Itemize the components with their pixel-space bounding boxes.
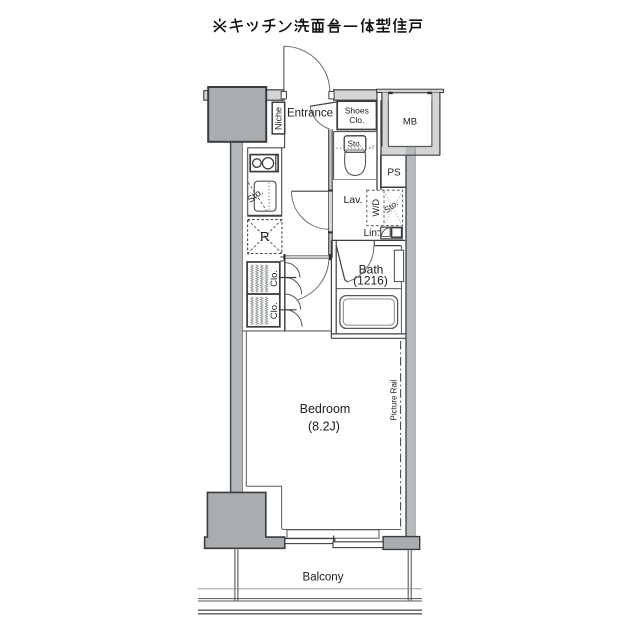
svg-text:Clo.: Clo. [349,115,364,125]
svg-text:Sto.: Sto. [348,139,362,148]
svg-text:Shoes: Shoes [345,106,369,116]
svg-text:Picture Rail: Picture Rail [389,379,398,420]
svg-text:PS: PS [387,168,401,179]
svg-text:Lav.: Lav. [343,194,362,206]
svg-text:Entrance: Entrance [287,108,333,120]
svg-text:W/D: W/D [371,199,381,217]
svg-text:R: R [260,230,269,244]
svg-text:(1216): (1216) [353,274,388,288]
svg-text:Clo.: Clo. [269,302,280,319]
svg-text:Lin.: Lin. [364,228,380,239]
svg-text:MB: MB [403,117,417,128]
svg-text:Niche: Niche [274,107,284,130]
svg-text:Balcony: Balcony [303,572,344,584]
svg-text:(8.2J): (8.2J) [308,420,340,434]
svg-text:Clo.: Clo. [269,270,280,287]
svg-text:Bedroom: Bedroom [300,402,351,416]
